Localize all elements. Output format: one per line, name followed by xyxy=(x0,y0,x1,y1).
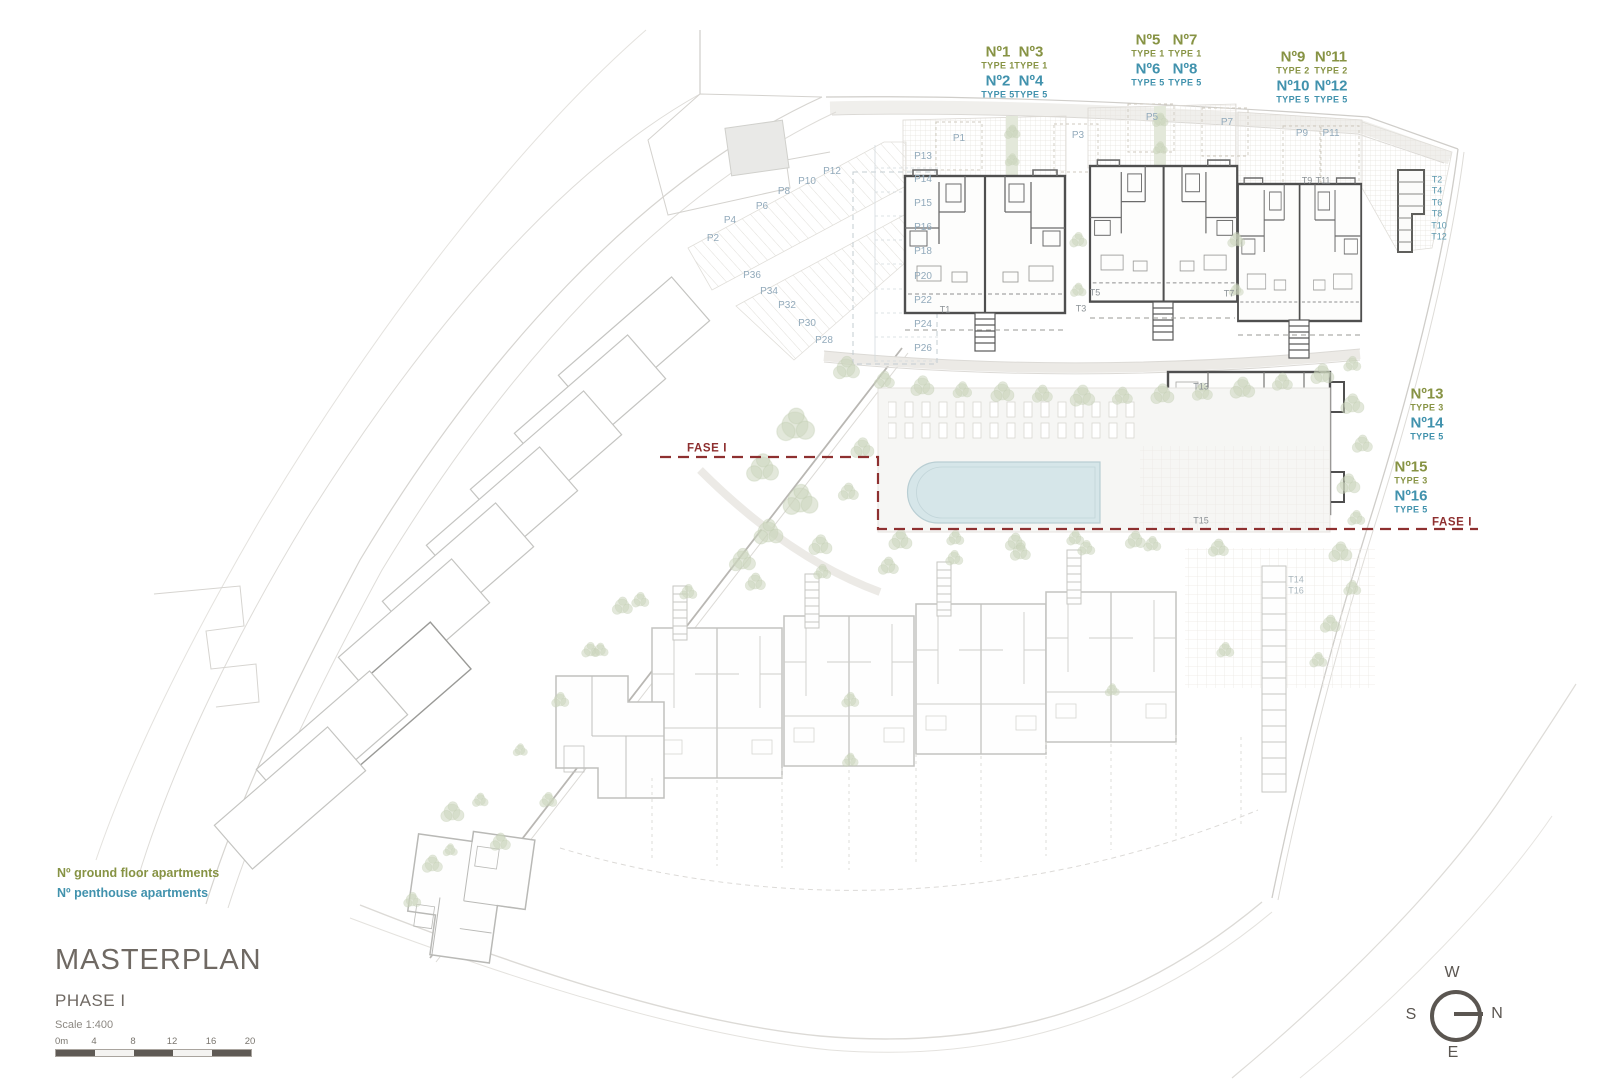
plan-label-61-t7: T7 xyxy=(1224,290,1235,299)
plan-label-60-t5: T5 xyxy=(1090,289,1101,298)
plan-label-41-p16: P16 xyxy=(914,223,932,233)
compass-north: N xyxy=(1491,1005,1503,1023)
plan-label-20-n10: Nº10 xyxy=(1277,79,1310,94)
compass-circle-icon xyxy=(1430,990,1482,1042)
compass-needle-icon xyxy=(1454,1012,1483,1016)
plan-label-52-p2: P2 xyxy=(707,234,719,244)
plan-label-71-t15: T15 xyxy=(1193,517,1209,526)
plan-label-51-p4: P4 xyxy=(724,216,736,226)
plan-label-17-n11: Nº11 xyxy=(1315,50,1347,65)
plan-label-23-type5: TYPE 5 xyxy=(1314,96,1347,105)
phase-subtitle: PHASE I xyxy=(55,991,262,1011)
plan-label-48-p10: P10 xyxy=(798,177,816,187)
plan-label-27-type5: TYPE 5 xyxy=(1410,433,1443,442)
plan-label-19-type2: TYPE 2 xyxy=(1314,67,1347,76)
scale-note: Scale 1:400 xyxy=(55,1019,262,1031)
plan-label-57-p28: P28 xyxy=(815,336,833,346)
plan-label-43-p20: P20 xyxy=(914,272,932,282)
plan-label-12-n6: Nº6 xyxy=(1136,62,1161,77)
plan-label-67-t8: T8 xyxy=(1432,210,1443,219)
legend: Nº ground floor apartments Nº penthouse … xyxy=(57,866,219,900)
plan-label-22-type5: TYPE 5 xyxy=(1276,96,1309,105)
masterplan-page: Nº1Nº3TYPE 1TYPE 1Nº2Nº4TYPE 5TYPE 5Nº5N… xyxy=(0,0,1620,1080)
masterplan-drawing xyxy=(0,0,1620,1080)
plan-label-3-type1: TYPE 1 xyxy=(1014,62,1047,71)
scale-tick: 16 xyxy=(206,1036,217,1047)
plan-label-29-type3: TYPE 3 xyxy=(1394,477,1427,486)
plan-label-21-n12: Nº12 xyxy=(1315,79,1348,94)
plan-label-58-t1: T1 xyxy=(940,306,951,315)
plan-label-53-p36: P36 xyxy=(743,271,761,281)
plan-label-40-p15: P15 xyxy=(914,199,932,209)
plan-label-74-fasei: FASE I xyxy=(687,443,727,455)
plan-label-11-type1: TYPE 1 xyxy=(1168,50,1201,59)
plan-label-59-t3: T3 xyxy=(1076,305,1087,314)
scale-tick: 4 xyxy=(91,1036,96,1047)
plan-label-25-type3: TYPE 3 xyxy=(1410,404,1443,413)
plan-label-1-n3: Nº3 xyxy=(1019,45,1044,60)
scale-bar: 0m 4 8 12 16 20 xyxy=(55,1036,250,1058)
plan-label-63-t11: T11 xyxy=(1316,177,1331,186)
scale-tick: 0m xyxy=(55,1036,68,1047)
plan-label-10-type1: TYPE 1 xyxy=(1131,50,1164,59)
plan-label-44-p22: P22 xyxy=(914,296,932,306)
scale-tick: 20 xyxy=(245,1036,256,1047)
plan-label-75-fasei: FASE I xyxy=(1432,517,1472,529)
plan-label-54-p34: P34 xyxy=(760,287,778,297)
plan-label-39-p14: P14 xyxy=(914,175,932,185)
compass-west: W xyxy=(1444,964,1459,982)
compass-south: S xyxy=(1406,1006,1417,1024)
scale-tick: 12 xyxy=(167,1036,178,1047)
plan-label-9-n7: Nº7 xyxy=(1173,33,1198,48)
plan-label-7-type5: TYPE 5 xyxy=(1014,91,1047,100)
plan-label-16-n9: Nº9 xyxy=(1281,50,1306,65)
plan-label-45-p24: P24 xyxy=(914,320,932,330)
plan-label-69-t12: T12 xyxy=(1431,233,1447,242)
plan-label-73-t16: T16 xyxy=(1288,587,1304,596)
page-title: MASTERPLAN xyxy=(55,944,262,977)
plan-label-0-n1: Nº1 xyxy=(986,45,1011,60)
plan-label-62-t9: T9 xyxy=(1302,177,1313,186)
plan-label-56-p30: P30 xyxy=(798,319,816,329)
plan-label-18-type2: TYPE 2 xyxy=(1276,67,1309,76)
plan-label-35-p7: P7 xyxy=(1221,118,1233,128)
plan-label-66-t6: T6 xyxy=(1432,199,1443,208)
plan-label-14-type5: TYPE 5 xyxy=(1131,79,1164,88)
plan-label-55-p32: P32 xyxy=(778,301,796,311)
plan-label-68-t10: T10 xyxy=(1431,222,1447,231)
plan-label-31-type5: TYPE 5 xyxy=(1394,506,1427,515)
legend-penthouse: Nº penthouse apartments xyxy=(57,886,219,900)
plan-label-37-p11: P11 xyxy=(1322,129,1339,139)
phase1-buildings xyxy=(905,160,1424,358)
compass-east: E xyxy=(1448,1044,1459,1062)
plan-label-13-n8: Nº8 xyxy=(1173,62,1198,77)
plan-label-46-p26: P26 xyxy=(914,344,932,354)
plan-label-8-n5: Nº5 xyxy=(1136,33,1161,48)
plan-label-38-p13: P13 xyxy=(914,152,932,162)
plan-label-6-type5: TYPE 5 xyxy=(981,91,1014,100)
plan-label-64-t2: T2 xyxy=(1432,176,1443,185)
plan-label-72-t14: T14 xyxy=(1288,576,1304,585)
plan-label-50-p6: P6 xyxy=(756,202,768,212)
plan-label-65-t4: T4 xyxy=(1432,187,1443,196)
title-block: MASTERPLAN PHASE I Scale 1:400 xyxy=(55,944,262,1031)
plan-label-15-type5: TYPE 5 xyxy=(1168,79,1201,88)
plan-label-47-p12: P12 xyxy=(823,167,841,177)
plan-label-26-n14: Nº14 xyxy=(1411,416,1444,431)
plan-label-42-p18: P18 xyxy=(914,247,932,257)
plan-label-34-p5: P5 xyxy=(1146,113,1158,123)
plan-label-33-p3: P3 xyxy=(1072,131,1084,141)
plan-label-24-n13: Nº13 xyxy=(1411,387,1444,402)
compass-rose: W S N E xyxy=(1390,955,1520,1075)
scale-bar-segments xyxy=(55,1049,252,1057)
plan-label-4-n2: Nº2 xyxy=(986,74,1011,89)
plan-label-2-type1: TYPE 1 xyxy=(981,62,1014,71)
scale-tick: 8 xyxy=(130,1036,135,1047)
legend-ground-floor: Nº ground floor apartments xyxy=(57,866,219,880)
plan-label-5-n4: Nº4 xyxy=(1019,74,1044,89)
plan-label-49-p8: P8 xyxy=(778,187,790,197)
plan-label-36-p9: P9 xyxy=(1296,129,1308,139)
plan-label-70-t13: T13 xyxy=(1193,383,1209,392)
plan-label-28-n15: Nº15 xyxy=(1395,460,1428,475)
plan-label-30-n16: Nº16 xyxy=(1395,489,1428,504)
plan-label-32-p1: P1 xyxy=(953,134,965,144)
phase2-buildings xyxy=(402,550,1286,967)
